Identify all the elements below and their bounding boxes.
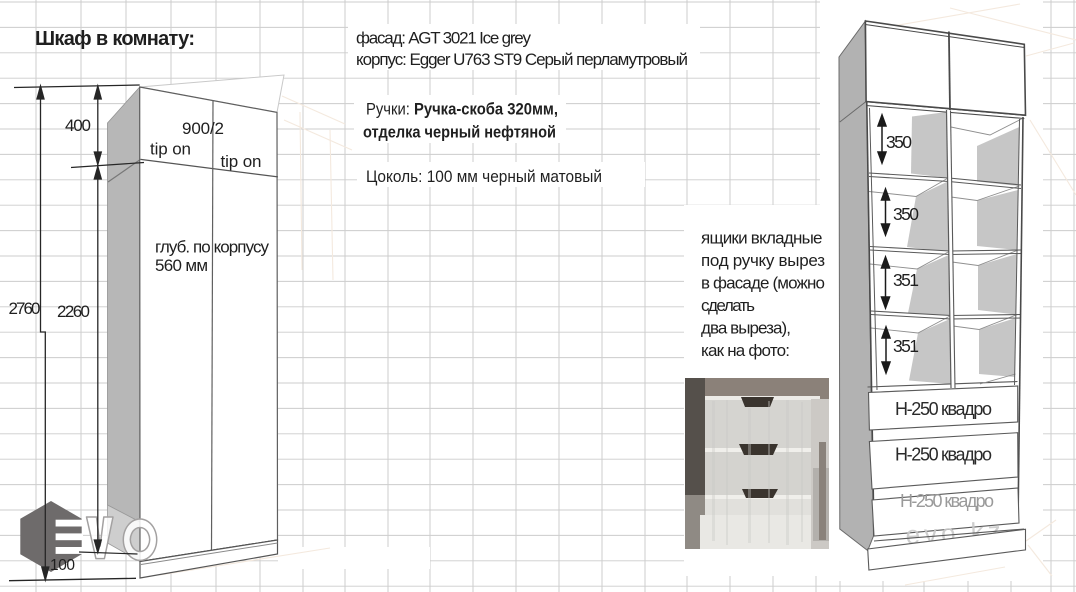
svg-text:Н-250 квадро: Н-250 квадро xyxy=(895,399,992,419)
svg-text:корпус: Egger U763 ST9 Серый п: корпус: Egger U763 ST9 Серый перламутров… xyxy=(356,50,688,69)
svg-text:два выреза),: два выреза), xyxy=(701,319,791,338)
svg-text:Цоколь: 100 мм черный матовый: Цоколь: 100 мм черный матовый xyxy=(366,167,602,186)
svg-text:2760: 2760 xyxy=(9,299,41,318)
svg-text:Шкаф в комнату:: Шкаф в комнату: xyxy=(35,28,195,50)
svg-text:Н-250 квадро: Н-250 квадро xyxy=(895,445,992,465)
svg-text:350: 350 xyxy=(886,132,912,152)
svg-text:сделать: сделать xyxy=(701,296,755,315)
svg-text:351: 351 xyxy=(893,270,919,290)
svg-text:tip on: tip on xyxy=(221,152,262,171)
svg-text:отделка черный нефтяной: отделка черный нефтяной xyxy=(363,123,556,142)
svg-text:900/2: 900/2 xyxy=(182,119,224,138)
svg-text:глуб. по корпусу: глуб. по корпусу xyxy=(155,238,270,257)
svg-text:400: 400 xyxy=(65,116,91,135)
svg-text:100: 100 xyxy=(50,557,75,574)
svg-text:как на фото:: как на фото: xyxy=(701,341,790,360)
svg-text:Ручки: Ручка-скоба 320мм,: Ручки: Ручка-скоба 320мм, xyxy=(366,100,558,119)
svg-text:560 мм: 560 мм xyxy=(155,256,208,275)
svg-text:фасад: AGT 3021 Ice grey: фасад: AGT 3021 Ice grey xyxy=(356,29,532,48)
svg-text:351: 351 xyxy=(893,336,919,356)
svg-text:под ручку вырез: под ручку вырез xyxy=(701,251,825,270)
svg-text:tip on: tip on xyxy=(150,140,191,159)
svg-text:ящики вкладные: ящики вкладные xyxy=(701,229,823,248)
svg-text:2260: 2260 xyxy=(57,302,90,321)
svg-text:в фасаде (можно: в фасаде (можно xyxy=(701,274,825,293)
svg-text:Н-250 квадро: Н-250 квадро xyxy=(900,491,994,511)
svg-text:350: 350 xyxy=(893,204,919,224)
